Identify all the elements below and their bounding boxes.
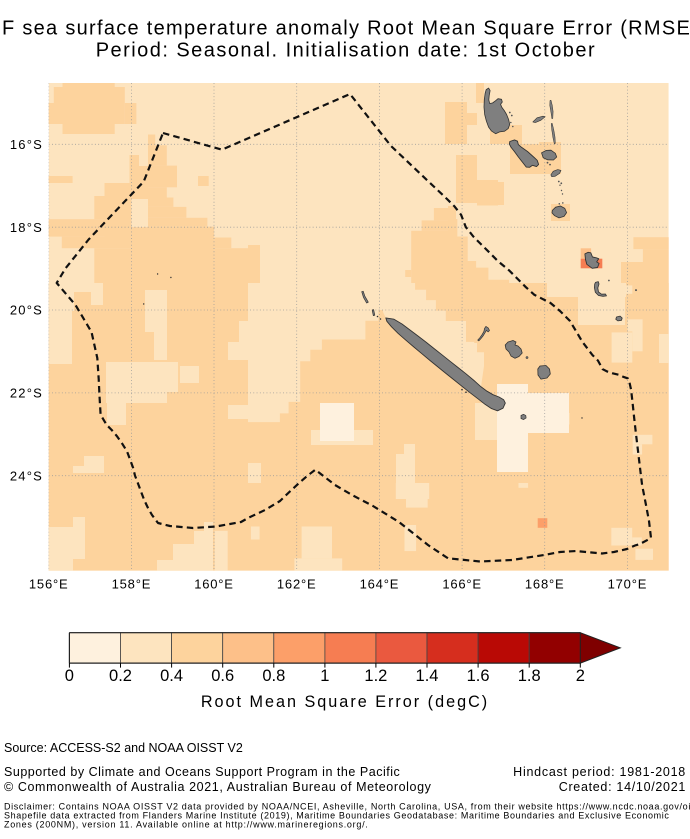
svg-text:1.2: 1.2 bbox=[364, 667, 387, 685]
svg-text:1: 1 bbox=[320, 667, 329, 685]
svg-text:24°S: 24°S bbox=[10, 468, 43, 483]
svg-text:0.4: 0.4 bbox=[160, 667, 183, 685]
svg-text:162°E: 162°E bbox=[277, 577, 317, 592]
svg-text:Period: Seasonal. Initialisati: Period: Seasonal. Initialisation date: 1… bbox=[96, 40, 596, 62]
svg-text:170°E: 170°E bbox=[608, 577, 648, 592]
svg-text:Created: 14/10/2021: Created: 14/10/2021 bbox=[559, 780, 686, 794]
svg-text:Supported by Climate and Ocean: Supported by Climate and Oceans Support … bbox=[4, 765, 400, 779]
svg-text:164°E: 164°E bbox=[360, 577, 400, 592]
svg-text:20°S: 20°S bbox=[10, 303, 43, 318]
svg-text:16°S: 16°S bbox=[10, 137, 43, 152]
svg-text:0.2: 0.2 bbox=[109, 667, 132, 685]
svg-text:168°E: 168°E bbox=[525, 577, 565, 592]
svg-text:0: 0 bbox=[65, 667, 74, 685]
svg-text:Root Mean Square Error (degC): Root Mean Square Error (degC) bbox=[201, 693, 489, 711]
svg-text:22°S: 22°S bbox=[10, 386, 43, 401]
svg-text:160°E: 160°E bbox=[194, 577, 234, 592]
svg-text:0.8: 0.8 bbox=[262, 667, 285, 685]
svg-text:F sea surface temperature anom: F sea surface temperature anomaly Root M… bbox=[2, 18, 690, 40]
svg-text:156°E: 156°E bbox=[29, 577, 69, 592]
svg-text:Source: ACCESS-S2 and NOAA OIS: Source: ACCESS-S2 and NOAA OISST V2 bbox=[4, 741, 243, 755]
svg-text:© Commonwealth of Australia 20: © Commonwealth of Australia 2021, Austra… bbox=[4, 780, 432, 794]
svg-text:158°E: 158°E bbox=[112, 577, 152, 592]
svg-text:18°S: 18°S bbox=[10, 220, 43, 235]
svg-text:0.6: 0.6 bbox=[211, 667, 234, 685]
svg-text:166°E: 166°E bbox=[442, 577, 482, 592]
svg-text:2: 2 bbox=[576, 667, 585, 685]
svg-text:1.8: 1.8 bbox=[518, 667, 541, 685]
svg-text:Hindcast period: 1981-2018: Hindcast period: 1981-2018 bbox=[513, 765, 686, 779]
svg-text:Zones (200NM), version 11. Ava: Zones (200NM), version 11. Available onl… bbox=[4, 820, 369, 830]
svg-text:1.6: 1.6 bbox=[467, 667, 490, 685]
svg-text:1.4: 1.4 bbox=[416, 667, 439, 685]
